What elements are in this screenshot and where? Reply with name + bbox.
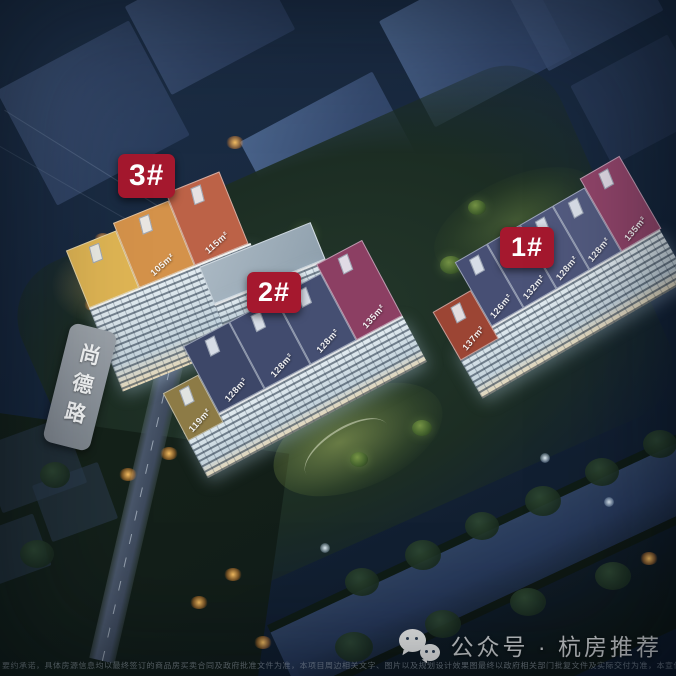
building-1-badge-label: 1#	[511, 232, 543, 262]
tree	[510, 588, 546, 616]
roof-area-label: 105m²	[148, 251, 176, 278]
path-light	[540, 453, 550, 463]
roof-area-label: 115m²	[203, 229, 231, 255]
watermark-text: 公众号 · 杭房推荐	[451, 628, 662, 662]
roof-area-label: 128m²	[314, 327, 341, 355]
building-2-badge: 2#	[247, 272, 301, 313]
roof-area-label: 128m²	[222, 376, 249, 404]
tree	[525, 486, 561, 516]
building-3-badge: 3#	[118, 154, 175, 198]
street-light	[226, 136, 244, 149]
street-light	[640, 552, 658, 565]
building-1-badge: 1#	[500, 227, 554, 268]
roof-area-label: 135m²	[360, 303, 387, 331]
neighbor-building	[570, 34, 676, 165]
tree	[20, 540, 54, 568]
roof-area-label: 128m²	[268, 351, 295, 379]
tree	[585, 458, 619, 486]
wechat-icon	[399, 629, 441, 662]
street-light	[160, 447, 178, 460]
tree	[350, 452, 368, 467]
tree	[40, 462, 70, 488]
tree	[468, 200, 486, 215]
tree	[335, 632, 373, 662]
building-2-badge-label: 2#	[258, 277, 290, 307]
street-light	[119, 468, 137, 481]
street-light	[224, 568, 242, 581]
roof-area-label: 119m²	[187, 406, 213, 434]
tree	[345, 568, 379, 596]
tree	[412, 420, 432, 436]
aerial-render: 105m² 115m² 119m² 128m² 128m² 128m² 135m…	[0, 0, 676, 676]
tree	[595, 562, 631, 590]
watermark: 公众号 · 杭房推荐	[399, 628, 662, 662]
tree	[405, 540, 441, 570]
tree	[465, 512, 499, 540]
path-light	[604, 497, 614, 507]
tree	[643, 430, 676, 458]
path-light	[320, 543, 330, 553]
street-light	[190, 596, 208, 609]
building-3-badge-label: 3#	[129, 159, 164, 192]
street-light	[254, 636, 272, 649]
disclaimer-text: 要约承诺，具体房源信息均以最终签订的商品房买卖合同及政府批准文件为准，本项目周边…	[2, 660, 676, 670]
